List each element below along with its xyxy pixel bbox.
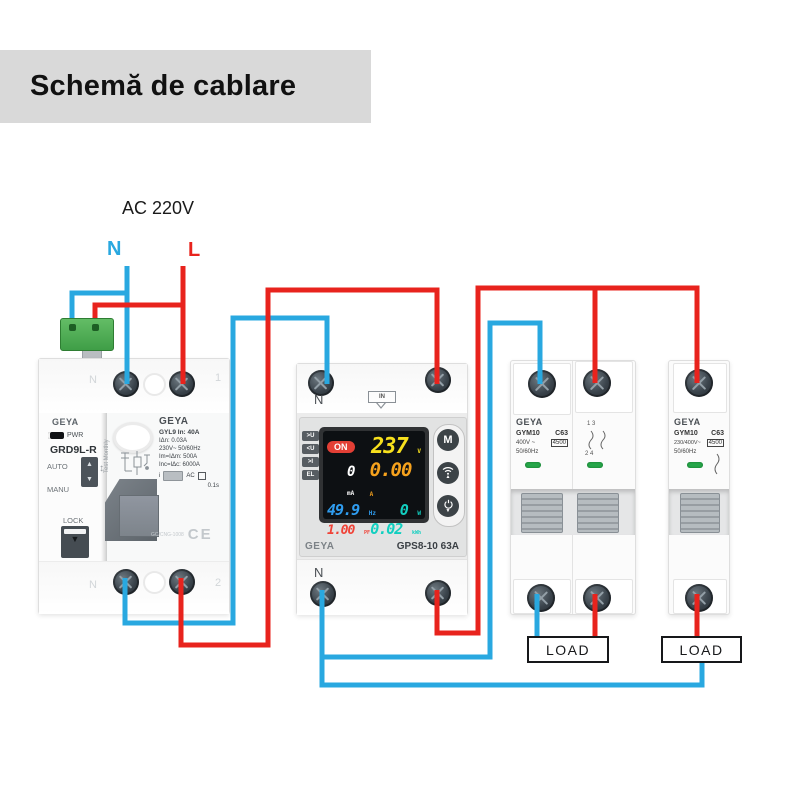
wifi-button: ▲ <box>437 462 459 484</box>
rcd-spec-block: GEYA GYL9 In: 40A IΔn: 0.03A 230V~ 50/60… <box>159 416 225 489</box>
rcd-auto-manu-rocker: ▲ ▼ <box>81 457 98 487</box>
breaker-1p-voltage: 230/400V~ <box>674 440 701 446</box>
breaker-2p-bottom-block-2 <box>575 579 633 614</box>
rcd-spec-line: 230V~ 50/60Hz <box>159 446 225 452</box>
load-right-label: LOAD <box>679 642 723 658</box>
wiring-diagram: Schemă de cablare AC 220V N L N 1 GEYA P… <box>0 0 800 800</box>
breaker-2p-trip-curve-icon <box>587 430 611 450</box>
breaker-2p-recess <box>511 489 635 535</box>
green-block-screw <box>92 324 99 331</box>
display-energy: 0.02 <box>370 520 402 538</box>
breaker-2p-indicator-2 <box>587 462 603 468</box>
breaker-2p-frequency: 50/60Hz <box>516 449 568 455</box>
in-arrow-icon <box>375 402 387 409</box>
slider-down-icon: ▼ <box>71 534 80 544</box>
display-current: 0.00 <box>370 459 412 481</box>
breaker-2p-device: GEYA GYM10 C63 400V ~ 4500 50/60Hz 1 3 2… <box>510 360 636 615</box>
gps-display: ON 237 V 0 mA 0.00 A <box>319 427 429 523</box>
display-leakage: 0 <box>347 464 354 480</box>
gps-model-label: GPS8-10 63A <box>397 541 459 552</box>
rcd-device: N 1 GEYA PWR GRD9L-R AUTO ▲ ▼ ↕ <box>38 358 230 614</box>
rcd-pwr-row: PWR <box>48 432 83 439</box>
rcd-lock-slider: ▼ <box>61 526 89 558</box>
neutral-wire-label: N <box>107 238 121 261</box>
power-button: ▼ <box>437 495 459 517</box>
rcd-sidebar: GEYA PWR GRD9L-R AUTO ▲ ▼ ↕ MANU LOCK ▼ <box>39 413 106 561</box>
rcd-mount-hole-bottom <box>143 571 166 594</box>
rcd-trip-time: 0.1s <box>159 483 219 489</box>
gps-output-n-label: N <box>314 565 323 580</box>
green-block-screw <box>69 324 76 331</box>
breaker-2p-top-block-2 <box>575 361 633 413</box>
breaker-1p-device: GEYA GYM10 C63 230/400V~ 4500 50/60Hz <box>668 360 730 615</box>
breaker-2p-terminal-screw-top-2 <box>583 369 611 397</box>
rcd-terminal-label-bottom-n: N <box>89 579 97 591</box>
rcd-model-label: GRD9L-R <box>50 444 97 456</box>
rcd-mount-hole-top <box>143 373 166 396</box>
breaker-1p-breaking-capacity: 4500 <box>707 439 724 447</box>
ce-mark: CE <box>188 526 213 543</box>
breaker-2p-breaking-capacity: 4500 <box>551 439 568 447</box>
supply-voltage-label: AC 220V <box>122 198 194 219</box>
badge-earth-leakage: EL <box>302 470 319 480</box>
gps-screen: ON 237 V 0 mA 0.00 A <box>323 431 425 519</box>
breaker-1p-bottom-block <box>673 579 727 614</box>
breaker-2p-model: GYM10 <box>516 430 540 437</box>
rcd-spec-line: Im=IΔm: 500A <box>159 454 225 460</box>
gps-body: >U <U >I EL ON 237 V 0 <box>297 413 467 559</box>
gps-terminal-screw-bottom-n <box>310 581 336 607</box>
load-left-label: LOAD <box>546 642 590 658</box>
rcd-top-terminal-strip: N 1 <box>39 359 229 414</box>
breaker-2p-label-band: GEYA GYM10 C63 400V ~ 4500 50/60Hz 1 3 2… <box>511 413 635 489</box>
power-icon <box>443 499 454 509</box>
load-box-left: LOAD <box>527 636 609 663</box>
gps-terminal-screw-bottom-l <box>425 580 451 606</box>
breaker-2p-terminal-screw-bottom-2 <box>583 584 611 612</box>
rcd-spec-line: GYL9 In: 40A <box>159 429 225 436</box>
rcd-spec-brand-logo: GEYA <box>159 416 225 427</box>
rcd-terminal-label-top-1: 1 <box>215 372 221 384</box>
display-leakage-unit: mA <box>347 490 354 497</box>
breaker-1p-brand-logo: GEYA <box>674 417 724 427</box>
rcd-terminal-label-bottom-2: 2 <box>215 577 221 589</box>
rcd-cert-code: GC/CNG-1008 <box>151 532 184 538</box>
gps-terminal-screw-top-l <box>425 367 451 393</box>
gps-top-terminal-strip: N IN <box>297 364 467 414</box>
display-power: 0 <box>400 501 408 519</box>
gps-brand-logo: GEYA <box>305 541 334 552</box>
rcd-terminal-screw-bottom-n <box>113 569 139 595</box>
display-power-factor: 1.00 <box>327 523 354 538</box>
breaker-1p-top-block <box>673 363 727 413</box>
rcd-manu-label: MANU <box>47 485 69 494</box>
rcd-body: GEYA PWR GRD9L-R AUTO ▲ ▼ ↕ MANU LOCK ▼ <box>39 413 229 561</box>
breaker-2p-bottom-block-1 <box>513 579 571 614</box>
gps-in-badge-text: IN <box>379 394 385 400</box>
rcd-lock-label: LOCK <box>63 516 83 525</box>
rcd-cert-row: GC/CNG-1008 CE <box>151 526 213 543</box>
rcd-brand-logo: GEYA <box>52 417 79 427</box>
breaker-1p-curve: C63 <box>711 430 724 437</box>
breaker-1p-toggle <box>680 493 720 533</box>
display-voltage: 237 <box>371 434 408 459</box>
badge-over-voltage: >U <box>302 431 319 441</box>
type-box-icon <box>198 472 206 480</box>
display-power-factor-unit: PF <box>364 530 370 536</box>
voltage-protector-device: N IN >U <U >I EL ON 237 <box>296 363 468 615</box>
breaker-1p-indicator <box>687 462 703 468</box>
line-wire-label: L <box>188 239 200 262</box>
breaker-2p-pole-marks-top: 1 3 <box>587 421 595 427</box>
page-title: Schemă de cablare <box>30 70 296 103</box>
display-on-badge: ON <box>327 441 355 453</box>
rcd-spec-line: IΔn: 0.03A <box>159 438 225 444</box>
breaker-2p-terminal-screw-top-1 <box>528 370 556 398</box>
mode-button-label: M <box>443 434 452 446</box>
badge-over-current: >I <box>302 457 319 467</box>
breaker-2p-toggle-2 <box>577 493 619 533</box>
load-box-right: LOAD <box>661 636 742 663</box>
rcd-pwr-label: PWR <box>67 432 83 439</box>
rcd-terminal-screw-top-n <box>113 371 139 397</box>
rcd-terminal-label-top-n: N <box>89 374 97 386</box>
rating-plate-icon <box>163 471 183 481</box>
breaker-1p-terminal-screw-top <box>685 369 713 397</box>
display-frequency: 49.9 <box>327 501 359 519</box>
rcd-bottom-terminal-strip: N 2 <box>39 561 229 614</box>
title-banner: Schemă de cablare <box>0 50 371 123</box>
display-frequency-unit: Hz <box>369 510 376 517</box>
power-down-arrow-icon: ▼ <box>446 509 451 514</box>
breaker-2p-toggle-1 <box>521 493 563 533</box>
rocker-down-icon: ▼ <box>86 476 93 483</box>
mode-button: M <box>437 429 459 451</box>
breaker-1p-trip-curve-icon <box>711 453 723 475</box>
rcd-terminal-screw-bottom-2 <box>169 569 195 595</box>
breaker-2p-indicator-1 <box>525 462 541 468</box>
rcd-spec-line: Inc=IΔc: 6000A <box>159 462 225 468</box>
display-energy-unit: kWh <box>412 530 421 536</box>
breaker-2p-terminal-screw-bottom-1 <box>527 584 555 612</box>
display-current-unit: A <box>370 491 374 498</box>
breaker-2p-pole-marks-bottom: 2 4 <box>585 451 593 457</box>
info-icon: i <box>159 473 160 479</box>
badge-under-voltage: <U <box>302 444 319 454</box>
test-terminal-block <box>60 318 114 351</box>
rcd-test-note: Test Monthly <box>104 439 110 473</box>
breaker-2p-top-block-1 <box>513 363 571 415</box>
display-power-unit: W <box>417 510 421 517</box>
breaker-1p-label-band: GEYA GYM10 C63 230/400V~ 4500 50/60Hz <box>669 413 729 489</box>
breaker-1p-model: GYM10 <box>674 430 698 437</box>
breaker-2p-brand-logo: GEYA <box>516 417 568 427</box>
rcd-type-label: AC <box>186 473 194 479</box>
gps-button-panel: M ▲ ▼ <box>433 424 465 527</box>
rcd-circuit-diagram <box>117 449 153 479</box>
wifi-up-arrow-icon: ▲ <box>446 475 451 480</box>
rocker-up-icon: ▲ <box>86 461 93 468</box>
rcd-terminal-screw-top-1 <box>169 371 195 397</box>
pwr-led-icon <box>48 432 64 439</box>
gps-bottom-terminal-strip: N <box>297 559 467 615</box>
gps-input-n-label: N <box>314 392 323 407</box>
breaker-1p-terminal-screw-bottom <box>685 584 713 612</box>
breaker-1p-recess <box>669 489 729 535</box>
wire-neutral-bus-to-load-right <box>322 655 702 685</box>
breaker-2p-voltage: 400V ~ <box>516 440 535 446</box>
breaker-2p-curve: C63 <box>555 430 568 437</box>
display-voltage-unit: V <box>417 448 421 455</box>
rcd-auto-label: AUTO <box>47 462 68 471</box>
